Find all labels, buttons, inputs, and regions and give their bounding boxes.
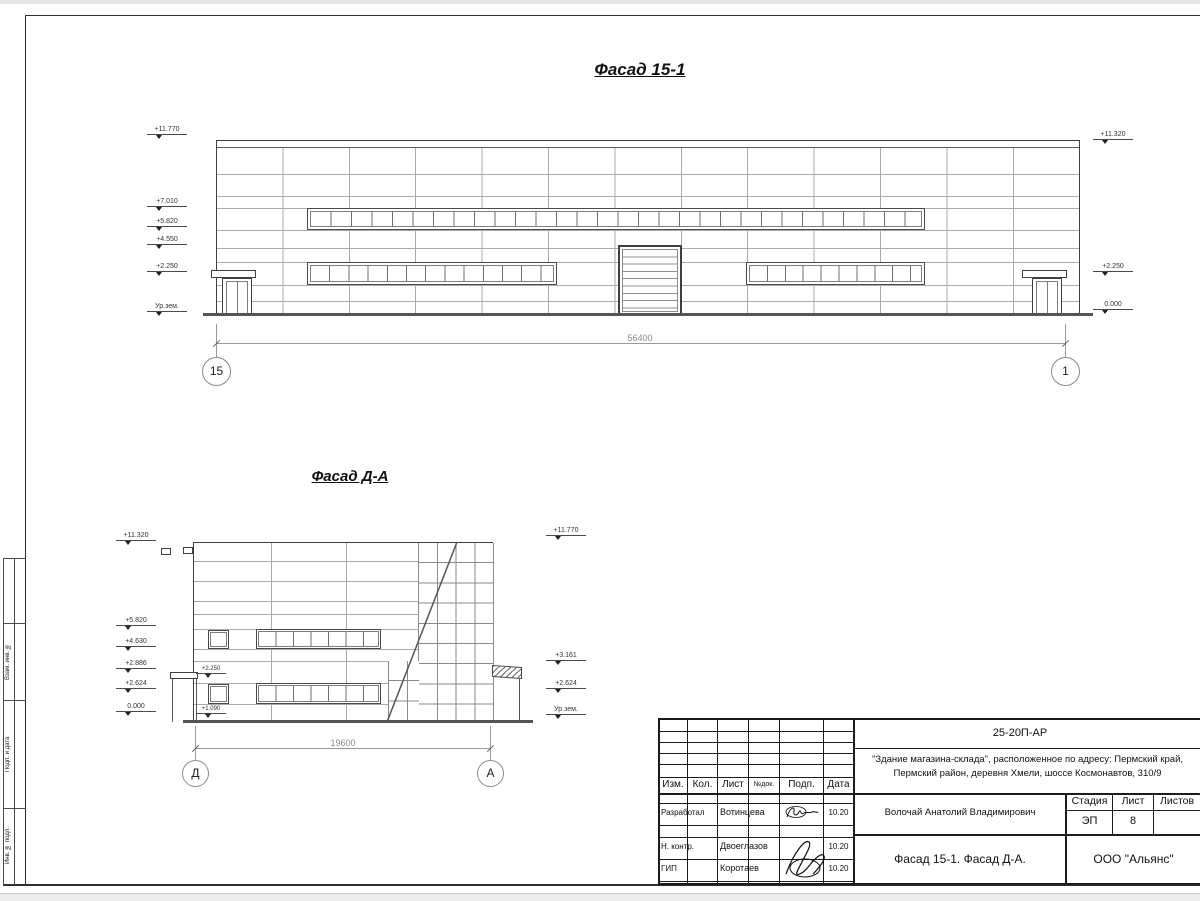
tb-sheet-value: 8 (1113, 815, 1153, 827)
drawing-sheet: { "sheet": { "side_stamp": { "labels": [… (0, 0, 1200, 900)
tb-col-ndoc: №док. (749, 781, 779, 788)
tb-doc-code: 25-20П-АР (855, 727, 1185, 739)
facade1-joint (217, 174, 1079, 175)
elevation-value: 0.000 (116, 703, 156, 712)
elevation-value: +2.250 (147, 263, 187, 272)
facade2-left-canopy-post (172, 679, 173, 722)
facade1-right-door-split (1047, 281, 1048, 315)
elevation-value: +1.090 (196, 705, 226, 714)
elevation-mark: +11.320 (1093, 131, 1133, 140)
tb-role: Разработал (661, 808, 717, 817)
facade2-axis-right: А (477, 760, 504, 787)
signature (783, 804, 821, 822)
facade2-roof-ledge (161, 548, 171, 555)
elevation-value: +4.630 (116, 638, 156, 647)
elevation-value: +3.161 (546, 652, 586, 661)
facade2-left-canopy-post (196, 679, 197, 722)
facade1-dimension-value: 56400 (590, 333, 690, 343)
elevation-mark: +1.090 (196, 705, 226, 714)
facade1-lower-right-window-band (746, 262, 925, 285)
elevation-value: Ур.зем. (546, 706, 586, 715)
elevation-mark: +2.250 (147, 263, 187, 272)
facade2-title: Фасад Д-А (285, 468, 415, 485)
tb-line (853, 748, 1200, 749)
side-stamp-label: Инв. № подл. (4, 811, 13, 881)
tb-project-line1: "Здание магазина-склада", расположенное … (855, 754, 1200, 765)
facade2-axis-left: Д (182, 760, 209, 787)
facade1-roller-door-slats (622, 249, 678, 312)
tb-name: Вотинцева (720, 807, 778, 817)
tb-line (658, 777, 853, 778)
tb-project-line2: Пермский район, деревня Хмели, шоссе Кос… (855, 768, 1200, 779)
facade2-lower-window-band (256, 683, 381, 704)
side-stamp-line (3, 700, 26, 701)
elevation-value: +5.820 (147, 218, 187, 227)
side-stamp-line (3, 623, 26, 624)
tb-line (853, 834, 1200, 836)
sheet-frame-top (25, 15, 1200, 16)
facade1-right-entrance-door (1032, 278, 1062, 316)
tb-line (658, 731, 853, 732)
facade2-lower-small-window (208, 684, 229, 704)
tb-col-kol: Кол. (688, 779, 717, 790)
sheet-frame-left (25, 15, 26, 885)
facade1-lower-left-window-panes (310, 265, 554, 282)
tb-sheets-label: Листов (1154, 795, 1200, 807)
facade2-left-entrance-canopy (170, 672, 198, 679)
tb-stage-value: ЭП (1067, 815, 1112, 827)
facade2-lower-small-window-glass (210, 686, 227, 702)
facade1-joint (217, 230, 1079, 231)
elevation-mark: +2.624 (116, 680, 156, 689)
facade1-ground-line (203, 313, 1093, 316)
facade1-roller-door (618, 245, 682, 316)
elevation-value: Ур.зем. (147, 303, 187, 312)
elevation-value: +11.320 (1093, 131, 1133, 140)
facade2-upper-small-window (208, 630, 229, 649)
facade2-ground-line (183, 720, 533, 723)
facade1-lower-right-window-panes (749, 265, 922, 282)
facade1-joint (217, 196, 1079, 197)
elevation-value: +2.624 (116, 680, 156, 689)
tb-line (658, 718, 1200, 720)
facade2-dimension-value: 19600 (293, 738, 393, 748)
tb-name: Двоеглазов (720, 841, 778, 851)
side-stamp-label: Взам. инв. № (4, 626, 13, 698)
elevation-mark: +2.886 (116, 660, 156, 669)
facade1-dimension-line (216, 343, 1065, 344)
tb-col-data: Дата (824, 779, 853, 790)
signature (778, 834, 830, 882)
elevation-mark: +5.820 (147, 218, 187, 227)
elevation-value: +11.770 (546, 527, 586, 536)
elevation-value: +5.820 (116, 617, 156, 626)
elevation-value: +2.886 (116, 660, 156, 669)
facade1-left-entrance-door (222, 278, 252, 316)
elevation-value: +4.550 (147, 236, 187, 245)
facade2-upper-window-band (256, 629, 381, 649)
elevation-mark: +2.250 (196, 665, 226, 674)
elevation-mark: Ур.зем. (546, 706, 586, 715)
elevation-mark: +4.630 (116, 638, 156, 647)
facade1-axis-right: 1 (1051, 357, 1080, 386)
facade1-building (216, 140, 1080, 315)
facade2-curtain-wall-diagonal (378, 536, 500, 728)
elevation-value: +7.010 (147, 198, 187, 207)
facade1-title: Фасад 15-1 (555, 60, 725, 80)
facade1-parapet-line (217, 147, 1079, 148)
elevation-mark: +5.820 (116, 617, 156, 626)
tb-col-podp: Подп. (780, 779, 823, 790)
tb-drawing-title: Фасад 15-1. Фасад Д-А. (855, 852, 1065, 866)
side-stamp-divider-line (14, 558, 15, 885)
facade1-axis-left: 15 (202, 357, 231, 386)
tb-stage-label: Стадия (1067, 795, 1112, 807)
elevation-mark: +4.550 (147, 236, 187, 245)
tb-line (658, 742, 853, 743)
elevation-mark: +11.770 (147, 126, 187, 135)
tb-line (658, 883, 1200, 885)
tb-person: Волочай Анатолий Владимирович (855, 807, 1065, 818)
tb-date: 10.20 (824, 808, 853, 817)
facade1-left-entrance-canopy (211, 270, 256, 278)
side-stamp-label: Подп. и дата (4, 703, 13, 805)
tb-line (658, 825, 853, 826)
facade2-upper-small-window-glass (210, 632, 227, 647)
elevation-value: +11.320 (116, 532, 156, 541)
side-stamp-line (3, 558, 26, 559)
tb-sheet-label: Лист (1113, 795, 1153, 807)
elevation-mark: +3.161 (546, 652, 586, 661)
elevation-value: +11.770 (147, 126, 187, 135)
tb-name: Коротаев (720, 863, 778, 873)
elevation-value: +2.250 (1093, 263, 1133, 272)
elevation-mark: 0.000 (116, 703, 156, 712)
elevation-mark: 0.000 (1093, 301, 1133, 310)
elevation-mark: Ур.зем. (147, 303, 187, 312)
tb-line (658, 803, 853, 804)
tb-line (658, 764, 853, 765)
tb-company: ООО "Альянс" (1067, 852, 1200, 866)
tb-line (658, 753, 853, 754)
facade1-upper-window-panes (310, 211, 922, 227)
facade2-dim-extension-right (490, 726, 491, 760)
facade2-dimension-line (195, 748, 490, 749)
elevation-value: 0.000 (1093, 301, 1133, 310)
facade1-lower-left-window-band (307, 262, 557, 285)
tb-role: Н. контр. (661, 842, 717, 851)
facade1-right-entrance-canopy (1022, 270, 1067, 278)
facade2-dim-extension-left (195, 726, 196, 760)
facade2-lower-window-panes (258, 685, 379, 702)
elevation-value: +2.250 (196, 665, 226, 674)
tb-col-list: Лист (718, 779, 748, 790)
tb-role: ГИП (661, 864, 717, 873)
elevation-mark: +2.624 (546, 680, 586, 689)
elevation-mark: +2.250 (1093, 263, 1133, 272)
elevation-mark: +7.010 (147, 198, 187, 207)
facade1-left-door-split (237, 281, 238, 315)
facade2-parapet-ledge (183, 547, 193, 554)
facade2-upper-window-panes (258, 631, 379, 647)
elevation-mark: +11.770 (546, 527, 586, 536)
facade2-right-canopy-post (519, 678, 520, 722)
facade1-upper-window-band (307, 208, 925, 230)
side-stamp-line (3, 808, 26, 809)
tb-col-izm: Изм. (659, 779, 687, 790)
title-block: Изм. Кол. Лист №док. Подп. Дата Разработ… (658, 718, 1200, 885)
elevation-value: +2.624 (546, 680, 586, 689)
elevation-mark: +11.320 (116, 532, 156, 541)
page-top-edge (0, 0, 1200, 4)
tb-line (1065, 810, 1200, 811)
